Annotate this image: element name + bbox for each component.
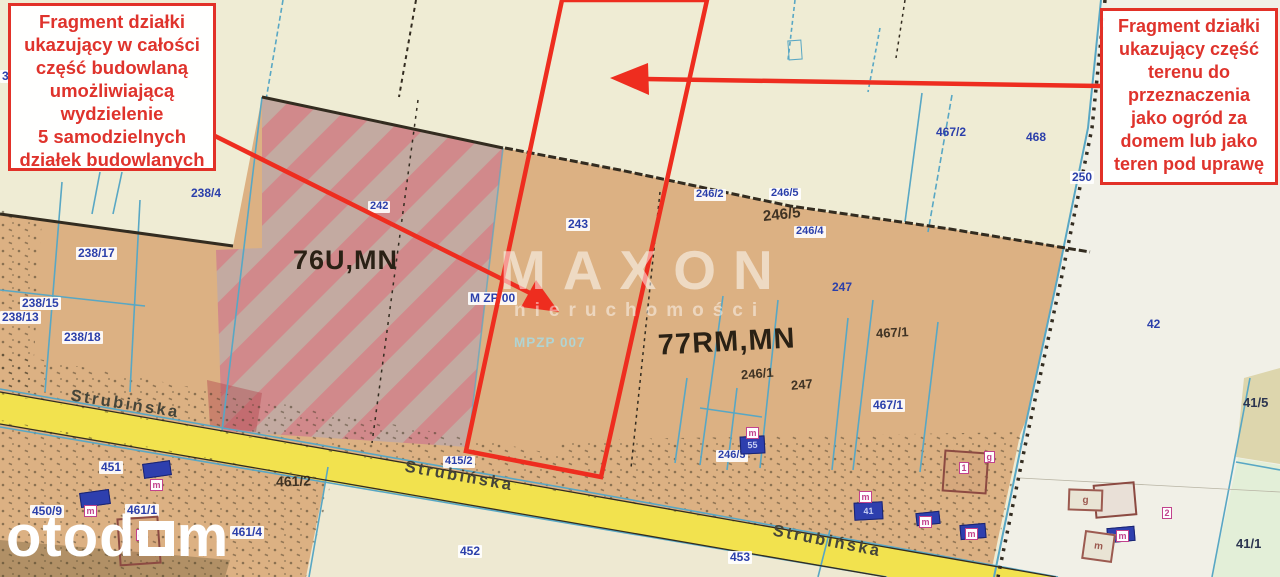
arrow-right-shaft xyxy=(645,79,1100,86)
annotation-box-left: Fragment działki ukazujący w całości czę… xyxy=(8,3,216,171)
arrow-left-head-icon xyxy=(521,280,559,312)
annotation-box-right: Fragment działki ukazujący część terenu … xyxy=(1100,8,1278,185)
arrow-right-head-icon xyxy=(610,63,649,95)
highlight-rectangle xyxy=(466,0,707,477)
arrow-left-shaft xyxy=(215,136,538,297)
map-screenshot: 3238/4238/17238/15238/13238/18242243246/… xyxy=(0,0,1280,577)
